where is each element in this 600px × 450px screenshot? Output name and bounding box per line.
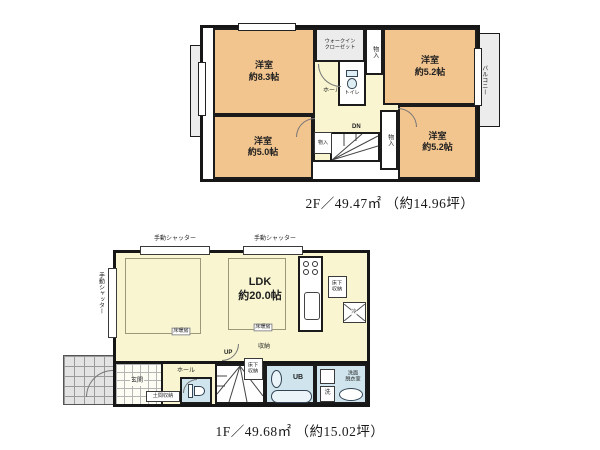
washroom: 洗面 脱衣室 洗	[315, 364, 367, 404]
ldk-label: LDK 約20.0帖	[215, 276, 305, 304]
floor-heating-label-1: 床暖房	[172, 328, 191, 335]
closet-mid-2f: 物入	[314, 132, 332, 154]
bedroom-sw-2f: 洋室 約5.0帖	[213, 115, 313, 179]
window-2f-top	[238, 23, 296, 31]
stairs-2f-graphic	[332, 134, 378, 160]
cabinet	[320, 369, 335, 384]
underfloor-storage-kitchen: 床下 収納	[328, 276, 347, 298]
bedroom-sw-label: 洋室 約5.0帖	[248, 136, 279, 159]
genkan-label: 玄関	[130, 378, 144, 386]
fridge-label: 冷	[352, 310, 357, 316]
walk-in-closet-2f: ウォークイン クローゼット	[315, 28, 365, 62]
bedroom-nw-label: 洋室 約8.3帖	[249, 60, 280, 83]
floorplan-page: バルコニー バルコニー ホール 洋室 約8.3帖 ウォークイン クローゼット 物…	[0, 0, 600, 450]
kitchen-sink-icon	[304, 292, 320, 320]
shutter-box-2	[243, 246, 303, 255]
toilet-2f-label: トイレ	[344, 90, 359, 96]
toilet-room-2f: トイレ	[338, 60, 366, 106]
window-2f-left	[198, 62, 206, 116]
unit-bath-label: UB	[293, 374, 303, 383]
washer-space: 洗	[320, 386, 335, 402]
hall-1f-label: ホール	[177, 368, 195, 376]
closet-top-2f: 物入	[365, 28, 383, 75]
stove-burner	[312, 269, 318, 275]
floor-heating-area-1	[125, 258, 201, 334]
wic-label: ウォークイン クローゼット	[325, 39, 356, 50]
doma-storage: 土間収納	[146, 391, 180, 402]
doma-storage-label: 土間収納	[153, 394, 173, 400]
washroom-label: 洗面 脱衣室	[341, 371, 365, 382]
underfloor-storage-kitchen-label: 床下 収納	[332, 281, 342, 292]
shutter-label-left: 手動シャッター	[96, 272, 104, 342]
sink-icon	[339, 388, 363, 401]
unit-bath: UB	[265, 364, 315, 404]
bedroom-ne-label: 洋室 約5.2帖	[415, 55, 446, 78]
closet-right-2f: 物入	[380, 110, 398, 170]
stove-burner	[303, 261, 309, 267]
shutter-label-1: 手動シャッター	[132, 236, 218, 244]
shutter-box-1	[140, 246, 210, 255]
bedroom-se-label: 洋室 約5.2帖	[422, 131, 453, 154]
stove-icon	[300, 258, 321, 278]
closet-mid-label: 物入	[318, 140, 328, 146]
floor-2-caption: 2F／49.47㎡ （約14.96坪）	[275, 192, 505, 212]
window-2f-right	[474, 48, 482, 106]
stove-burner	[312, 261, 318, 267]
closet-right-label: 物入	[385, 134, 393, 146]
bathtub-icon	[271, 390, 312, 403]
floor-heating-label-2: 床暖房	[254, 324, 273, 331]
underfloor-storage-stairs-label: 床下 収納	[248, 363, 258, 374]
floor-1-caption: 1F／49.68㎡ （約15.02坪）	[170, 420, 430, 440]
closet-top-label: 物入	[370, 46, 378, 58]
kitchen-counter	[298, 256, 323, 332]
fridge-space: 冷	[343, 302, 366, 323]
bedroom-ne-2f: 洋室 約5.2帖	[383, 28, 477, 105]
bath-basin-icon	[271, 370, 282, 388]
washer-label: 洗	[324, 390, 330, 398]
underfloor-storage-stairs: 床下 収納	[244, 358, 263, 380]
closet-1f-label: 収納	[258, 344, 270, 352]
stairs-2f	[330, 132, 380, 162]
stove-burner	[303, 269, 309, 275]
bedroom-nw-2f: 洋室 約8.3帖	[213, 28, 315, 115]
toilet-icon	[346, 70, 358, 90]
stairs-dn-label: DN	[352, 124, 361, 132]
shutter-box-left	[108, 268, 117, 338]
shutter-label-2: 手動シャッター	[232, 236, 318, 244]
